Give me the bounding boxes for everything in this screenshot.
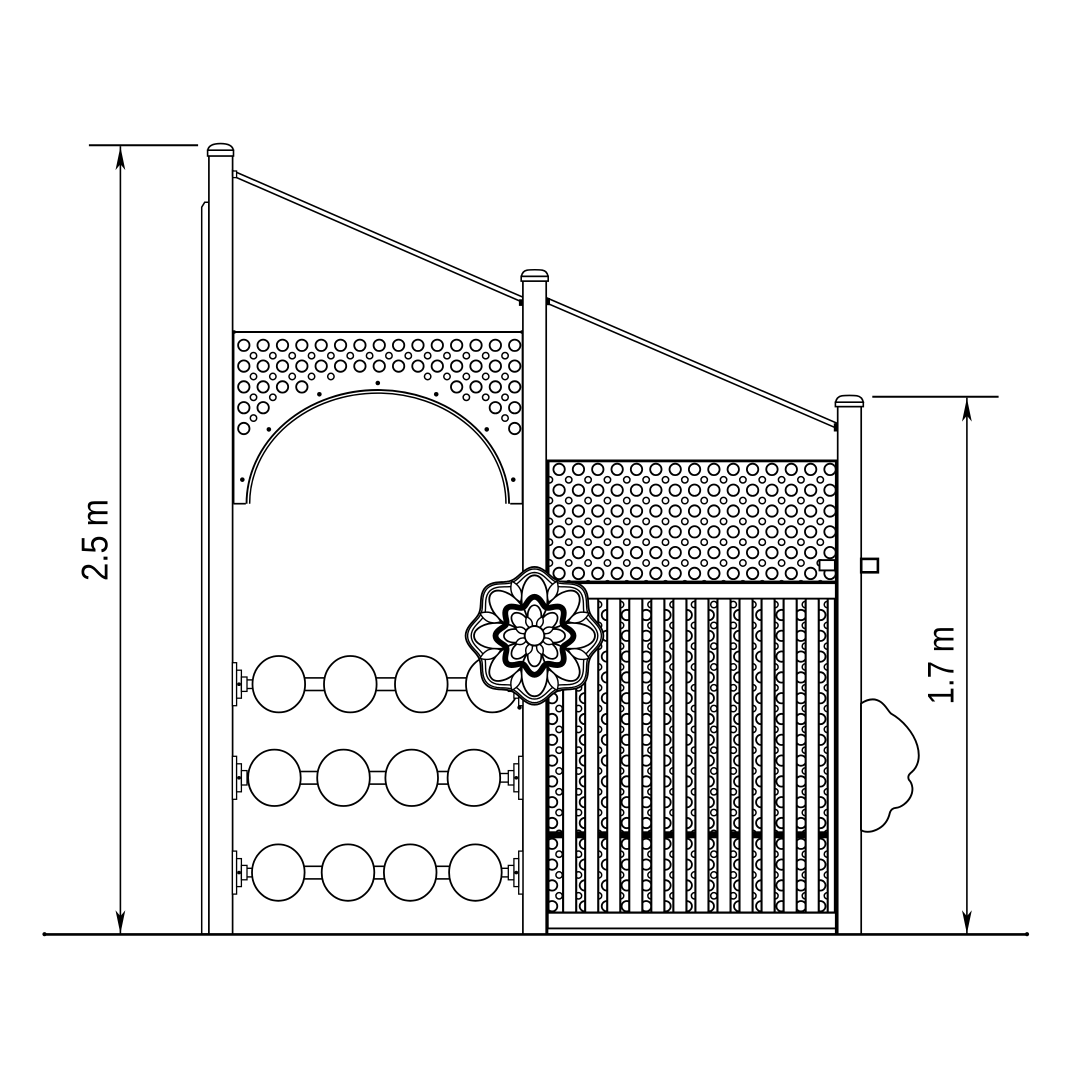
svg-text:2.5 m: 2.5 m [75,499,116,581]
svg-text:1.7 m: 1.7 m [920,626,961,705]
